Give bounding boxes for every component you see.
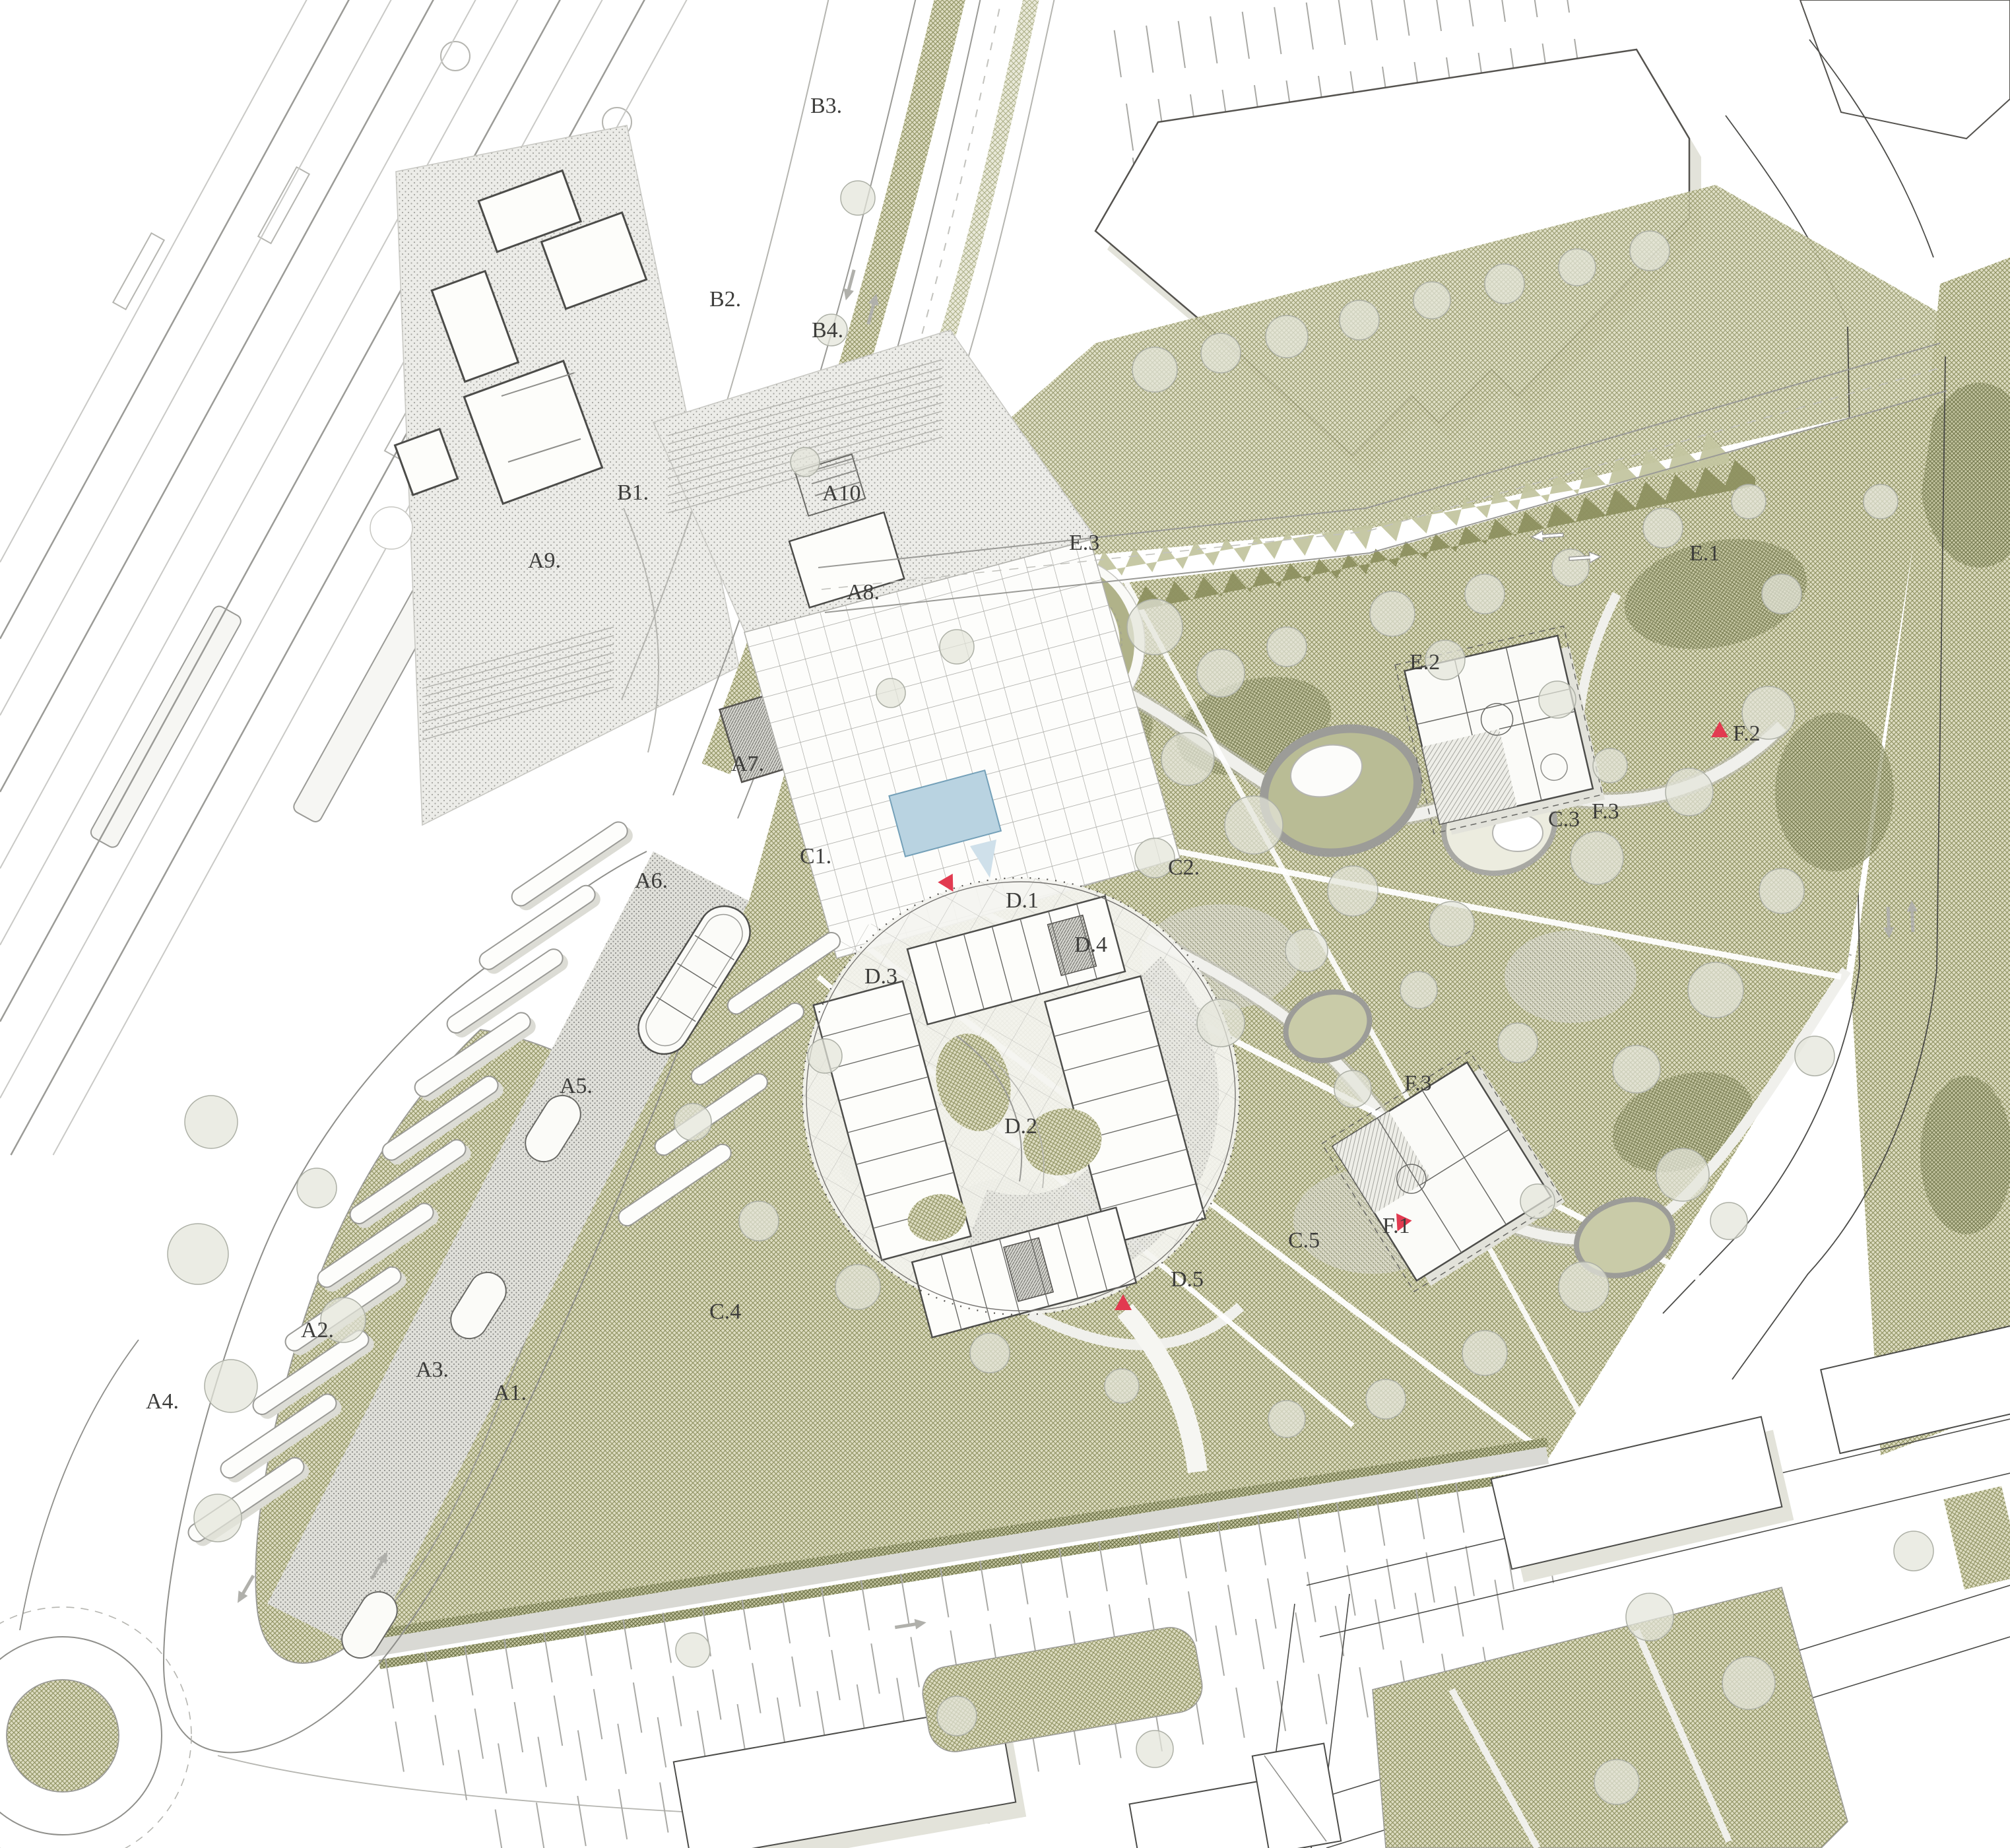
plan-label-C5: C.5 [1288, 1228, 1320, 1253]
tree-canopy [1795, 1036, 1834, 1076]
parking-stall [475, 1709, 484, 1759]
parking-stall [871, 1643, 880, 1694]
plan-label-B2: B2. [709, 287, 741, 312]
plan-label-D5: D.5 [1171, 1267, 1204, 1292]
parking-stall [1563, 0, 1569, 13]
tree-canopy [1864, 484, 1898, 519]
track-shelter [113, 233, 164, 310]
parking-stall [1256, 1619, 1264, 1669]
tree-canopy [1285, 929, 1328, 972]
tree-canopy [1462, 1331, 1507, 1375]
tree-canopy [1559, 1262, 1609, 1312]
tree-canopy [1593, 748, 1627, 783]
parking-stall [1126, 104, 1133, 150]
tree-canopy [808, 1039, 842, 1073]
parking-stall [1338, 0, 1345, 45]
tree-canopy [1656, 1148, 1709, 1201]
tree-canopy [1552, 549, 1589, 586]
tree-canopy [1161, 733, 1214, 785]
tree-canopy [674, 1104, 711, 1140]
parking-stall [435, 1715, 443, 1765]
tree-canopy [1328, 866, 1378, 916]
parking-stall [577, 1796, 586, 1846]
tree-canopy [1340, 300, 1379, 340]
plan-label-A10: A10 [822, 481, 861, 506]
plan-label-A9: A9. [528, 548, 561, 573]
parking-stall [1216, 1626, 1224, 1676]
parking-stall [911, 1637, 919, 1687]
plan-label-C3: C.3 [1548, 807, 1580, 832]
parking-stall [697, 1711, 706, 1761]
tree-canopy [1267, 627, 1307, 667]
parking-stall [1295, 1612, 1304, 1663]
plan-label-A4: A4. [146, 1389, 179, 1414]
tree-canopy [205, 1360, 257, 1412]
parking-stall [538, 1737, 546, 1787]
parking-stall [1268, 1579, 1276, 1629]
plan-label-A3: A3. [416, 1358, 449, 1382]
tree-canopy [1485, 264, 1524, 304]
parking-stall [554, 1696, 563, 1746]
parking-stall [1115, 30, 1121, 77]
tree-canopy [1498, 1023, 1538, 1063]
tree-canopy [1268, 1401, 1305, 1437]
site-plan-canvas: B3.B2.B4.B1.A9.A10A8.E.3A7.C1.A6.D.1C2.D… [0, 0, 2010, 1848]
parking-stall [496, 1810, 504, 1848]
parking-stall [1375, 1599, 1384, 1649]
tree-canopy [739, 1201, 779, 1241]
track-shelter [258, 167, 309, 244]
plan-label-A7: A7. [731, 752, 764, 776]
tree-canopy [1225, 796, 1283, 854]
parking-stall [1179, 21, 1185, 68]
direction-arrow [894, 1617, 927, 1632]
tree-canopy [1613, 1045, 1660, 1093]
tree-canopy [1688, 962, 1743, 1018]
tree-canopy [1559, 249, 1596, 286]
tree-canopy [1626, 1593, 1673, 1641]
plan-label-F2: F.2 [1733, 721, 1761, 746]
parking-stall [1359, 1667, 1368, 1717]
parking-stall [1307, 1572, 1316, 1622]
tree-canopy [1759, 869, 1804, 913]
tree-canopy [1520, 1184, 1555, 1218]
parking-stall [1530, 0, 1537, 17]
tree-canopy [970, 1333, 1010, 1373]
tree-canopy [185, 1096, 238, 1148]
south-park-block [1373, 1587, 1848, 1848]
tree-canopy [1465, 574, 1505, 614]
tree-canopy [1366, 1379, 1406, 1419]
parking-stall [619, 1789, 628, 1839]
tree-canopy [1571, 832, 1623, 884]
plan-label-A6: A6. [635, 869, 668, 893]
parking-stall [1499, 0, 1505, 22]
tree-canopy [1710, 1203, 1747, 1239]
tree-canopy [841, 181, 875, 215]
tree-canopy [940, 630, 974, 664]
plan-label-A5: A5. [560, 1074, 593, 1098]
tree-canopy [1722, 1657, 1775, 1709]
parking-stall [633, 1682, 642, 1732]
parking-stall [1426, 1552, 1435, 1602]
tree-canopy [1630, 231, 1670, 271]
site-plan-svg: B3.B2.B4.B1.A9.A10A8.E.3A7.C1.A6.D.1C2.D… [0, 0, 2010, 1848]
plan-label-F3S: F.3 [1404, 1071, 1432, 1096]
plan-label-B4: B4. [812, 318, 843, 343]
plan-label-C1: C1. [800, 844, 831, 869]
tree-canopy [1666, 768, 1713, 816]
tree-canopy [1413, 282, 1450, 319]
plan-label-F3N: F.3 [1592, 799, 1619, 824]
parking-stall [1402, 0, 1409, 36]
plan-label-D2: D.2 [1004, 1114, 1037, 1138]
parking-stall [857, 1684, 866, 1734]
plan-label-B1: B1. [617, 480, 649, 505]
parking-stall [1210, 16, 1217, 63]
plan-label-D1: D.1 [1006, 888, 1039, 913]
parking-stall [1318, 1674, 1327, 1724]
parking-stall [459, 1750, 467, 1800]
parking-stall [713, 1670, 721, 1720]
parking-stall [1466, 0, 1473, 26]
plan-label-E2: E.2 [1410, 650, 1440, 675]
parking-stall [738, 1704, 746, 1754]
parking-stall [1466, 1546, 1474, 1596]
parking-stall [618, 1724, 626, 1774]
plan-label-D4: D.4 [1074, 933, 1107, 957]
tree-canopy [1266, 315, 1308, 358]
parking-stall [1435, 0, 1441, 31]
parking-stall [777, 1698, 786, 1748]
tree-canopy [676, 1633, 710, 1667]
plan-label-B3: B3. [810, 94, 842, 118]
tree-canopy [1894, 1531, 1933, 1571]
tree-canopy [1594, 1760, 1639, 1804]
parking-stall [658, 1717, 666, 1767]
rail-line [0, 0, 395, 715]
tree-canopy [1127, 599, 1183, 655]
parking-stall [515, 1702, 523, 1752]
tree-canopy [1334, 1071, 1371, 1107]
parking-stall [578, 1731, 587, 1781]
parking-stall [594, 1689, 602, 1739]
tree-canopy [168, 1224, 228, 1284]
parking-stall [1371, 0, 1377, 40]
parking-stall [536, 1802, 545, 1848]
parking-stall [1455, 1586, 1464, 1636]
parking-stall [792, 1657, 800, 1707]
tree-canopy [1429, 902, 1474, 946]
plan-label-E1: E.1 [1689, 541, 1720, 566]
parking-stall [752, 1663, 761, 1713]
parking-stall [660, 1783, 668, 1833]
tree-canopy [1197, 649, 1245, 697]
parking-stall [673, 1676, 682, 1726]
tree-canopy [1539, 681, 1576, 718]
tree-canopy [194, 1494, 242, 1542]
plan-label-D3: D.3 [864, 964, 897, 989]
plaza-tree-circle [370, 507, 412, 549]
parking-stall [1274, 7, 1281, 54]
tree-canopy [791, 447, 820, 477]
parking-stall [1188, 1591, 1197, 1641]
parking-stall [1243, 12, 1249, 59]
parking-stall [831, 1650, 840, 1700]
parking-stall [1228, 1585, 1237, 1635]
plan-label-A8: A8. [847, 580, 880, 605]
tree-canopy [1132, 347, 1177, 392]
plan-label-C4: C.4 [709, 1300, 741, 1324]
parking-stall [1236, 1688, 1245, 1738]
tree-canopy [1136, 1731, 1173, 1767]
direction-arrow [233, 1573, 258, 1606]
parking-stall [1146, 26, 1153, 73]
direction-arrow [841, 269, 859, 302]
tree-canopy [1197, 999, 1245, 1047]
tree-canopy [1762, 574, 1801, 614]
rail-line [0, 0, 352, 639]
plan-label-C2: C2. [1168, 855, 1200, 880]
parking-stall [498, 1744, 507, 1794]
plan-label-E3: E.3 [1069, 531, 1099, 555]
tree-canopy [1201, 333, 1241, 373]
tree-canopy [1400, 972, 1437, 1008]
parking-stall [897, 1678, 905, 1728]
tree-canopy [876, 678, 905, 708]
tree-canopy [297, 1168, 337, 1208]
rail-platform [88, 604, 243, 849]
tree-canopy [1370, 591, 1415, 636]
parking-stall [817, 1691, 826, 1741]
plan-label-A2: A2. [301, 1318, 334, 1342]
housing-block [674, 1624, 1341, 1848]
rail-line [0, 0, 310, 562]
tree-canopy [1643, 508, 1683, 548]
parking-stall [1495, 1580, 1503, 1630]
plan-label-A1: A1. [494, 1381, 527, 1405]
parking-stall [395, 1721, 404, 1771]
parking-stall [1307, 3, 1313, 49]
tree-canopy [1732, 484, 1766, 519]
tree-canopy [937, 1696, 977, 1736]
parking-stall [1415, 1593, 1424, 1643]
roundabout [0, 1607, 191, 1848]
tree-canopy [835, 1265, 880, 1309]
tree-canopy [1105, 1369, 1139, 1403]
plan-label-F1: F.1 [1382, 1214, 1410, 1238]
